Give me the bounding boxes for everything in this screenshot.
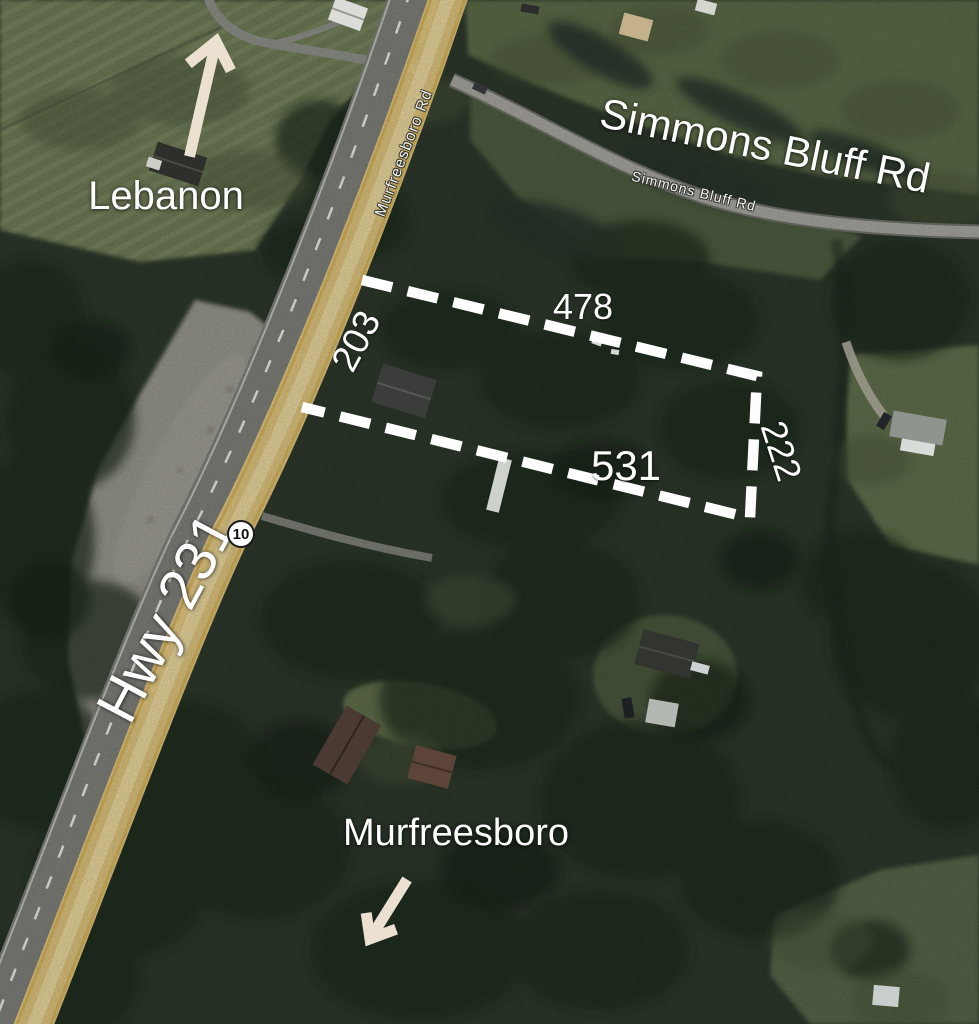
route-10-shield: 10 [227,520,255,548]
building [645,699,679,728]
building [872,985,900,1007]
aerial-basemap [0,0,979,1024]
route-shield-number: 10 [233,526,250,543]
aerial-parcel-map: Lebanon Simmons Bluff Rd Murfreesboro Hw… [0,0,979,1024]
photo-grain [0,0,979,1024]
